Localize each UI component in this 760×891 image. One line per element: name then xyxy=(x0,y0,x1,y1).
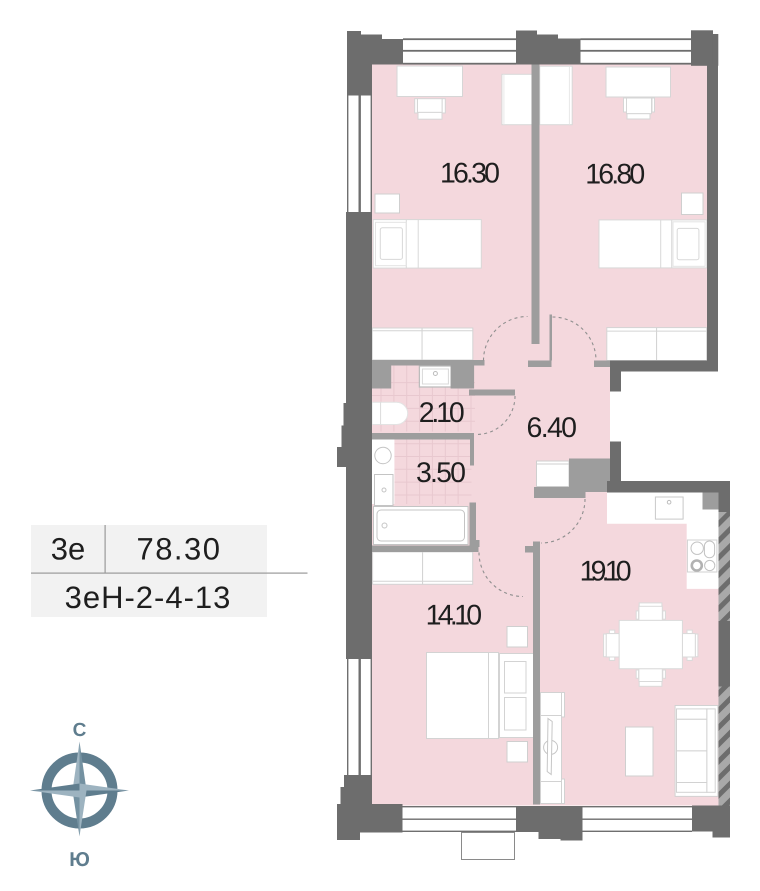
svg-text:2.10: 2.10 xyxy=(419,397,465,429)
svg-text:16.30: 16.30 xyxy=(440,158,500,190)
svg-text:19.10: 19.10 xyxy=(580,555,632,587)
svg-text:78.30: 78.30 xyxy=(136,532,221,567)
svg-text:6.40: 6.40 xyxy=(527,412,578,444)
svg-text:С: С xyxy=(73,720,87,741)
svg-text:3еН-2-4-13: 3еН-2-4-13 xyxy=(65,580,232,615)
svg-text:3.50: 3.50 xyxy=(416,457,466,489)
svg-text:16.80: 16.80 xyxy=(585,159,645,191)
svg-text:14.10: 14.10 xyxy=(426,600,483,632)
svg-text:Ю: Ю xyxy=(69,849,90,871)
svg-text:3е: 3е xyxy=(51,532,85,567)
